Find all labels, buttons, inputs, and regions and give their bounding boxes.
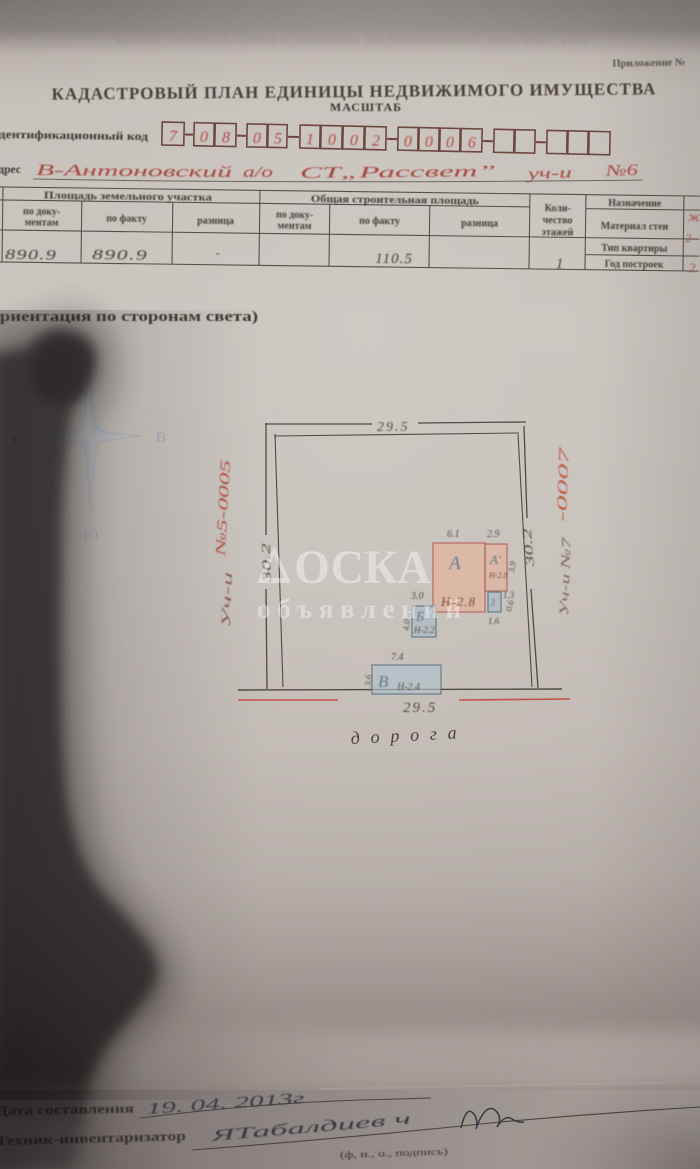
svg-text:Коли-: Коли- bbox=[545, 203, 571, 214]
svg-text:В-Антоновский: В-Антоновский bbox=[36, 162, 232, 181]
svg-text:СТ„Рассвет”: СТ„Рассвет” bbox=[300, 163, 496, 182]
svg-text:МАСШТАБ: МАСШТАБ bbox=[330, 100, 402, 114]
svg-text:по доку-: по доку- bbox=[276, 210, 313, 221]
svg-text:0: 0 bbox=[425, 134, 433, 151]
svg-text:0: 0 bbox=[200, 129, 208, 146]
svg-text:29.5: 29.5 bbox=[377, 420, 410, 435]
svg-text:890.9: 890.9 bbox=[5, 247, 57, 264]
svg-text:разница: разница bbox=[197, 216, 234, 227]
svg-text:№6: №6 bbox=[604, 162, 638, 180]
svg-text:Приложение №: Приложение № bbox=[612, 57, 685, 69]
svg-text:5: 5 bbox=[274, 130, 282, 147]
svg-text:7: 7 bbox=[169, 128, 178, 145]
svg-text:ОСКА: ОСКА bbox=[294, 541, 431, 594]
svg-text:чество: чество bbox=[543, 215, 573, 226]
svg-text:по доку-: по доку- bbox=[23, 206, 60, 217]
svg-text:по факту: по факту bbox=[106, 213, 147, 225]
svg-text:Н-2.2: Н-2.2 bbox=[413, 625, 435, 635]
svg-text:2-: 2- bbox=[685, 231, 695, 245]
svg-text:-0007: -0007 bbox=[555, 445, 573, 522]
svg-text:Общая строительная площадь: Общая строительная площадь bbox=[311, 194, 480, 207]
svg-text:В: В bbox=[156, 430, 166, 446]
svg-text:КАДАСТРОВЫЙ ПЛАН ЕДИНИЦЫ НЕДВИ: КАДАСТРОВЫЙ ПЛАН ЕДИНИЦЫ НЕДВИЖИМОГО ИМУ… bbox=[115, 32, 588, 47]
svg-text:2: 2 bbox=[372, 133, 380, 150]
svg-text:А': А' bbox=[489, 552, 501, 567]
svg-text:29.5: 29.5 bbox=[403, 700, 437, 716]
svg-text:Н-2.4: Н-2.4 bbox=[396, 682, 420, 693]
svg-text:Н-2.8: Н-2.8 bbox=[488, 571, 507, 580]
svg-text:Адрес: Адрес bbox=[0, 164, 21, 176]
svg-text:6.1: 6.1 bbox=[447, 529, 460, 540]
svg-text:Тип квартиры: Тип квартиры bbox=[601, 243, 667, 255]
svg-text:В: В bbox=[378, 672, 389, 691]
svg-text:разница: разница bbox=[461, 218, 498, 229]
svg-text:0: 0 bbox=[350, 132, 358, 149]
svg-text:6: 6 bbox=[468, 135, 476, 152]
svg-text:8: 8 bbox=[222, 129, 230, 146]
svg-text:1: 1 bbox=[306, 131, 314, 148]
svg-text:3: 3 bbox=[489, 598, 495, 609]
svg-text:по факту: по факту bbox=[359, 216, 400, 228]
svg-text:0: 0 bbox=[446, 134, 454, 151]
svg-text:этажей: этажей bbox=[542, 227, 574, 238]
svg-text:7.4: 7.4 bbox=[391, 652, 404, 663]
svg-text:0: 0 bbox=[253, 130, 261, 147]
svg-text:ж: ж bbox=[688, 210, 700, 225]
svg-text:Уч-и №7: Уч-и №7 bbox=[556, 537, 574, 616]
svg-text:Уч-и: Уч-и bbox=[218, 571, 235, 629]
svg-text:ментам: ментам bbox=[25, 217, 59, 228]
svg-text:Ю: Ю bbox=[83, 528, 98, 544]
svg-text:890.9: 890.9 bbox=[92, 247, 148, 264]
svg-text:2: 2 bbox=[689, 260, 696, 275]
svg-text:2.9: 2.9 bbox=[487, 529, 500, 540]
svg-text:1: 1 bbox=[556, 256, 565, 272]
svg-text:Материал стен: Материал стен bbox=[601, 221, 669, 233]
svg-text:Год построек: Год построек bbox=[605, 259, 664, 271]
svg-text:1.6: 1.6 bbox=[488, 616, 500, 626]
svg-text:-: - bbox=[215, 245, 221, 260]
svg-text:Идентификационный код: Идентификационный код bbox=[0, 129, 148, 143]
svg-text:а/о: а/о bbox=[243, 164, 273, 181]
svg-text:А: А bbox=[447, 553, 461, 574]
svg-text:Площадь земельного участка: Площадь земельного участка bbox=[44, 191, 213, 204]
svg-text:0: 0 bbox=[404, 133, 412, 150]
svg-text:110.5: 110.5 bbox=[375, 251, 413, 267]
svg-text:Назначение: Назначение bbox=[608, 198, 662, 210]
svg-text:ментам: ментам bbox=[278, 221, 312, 232]
svg-text:0: 0 bbox=[328, 132, 336, 149]
